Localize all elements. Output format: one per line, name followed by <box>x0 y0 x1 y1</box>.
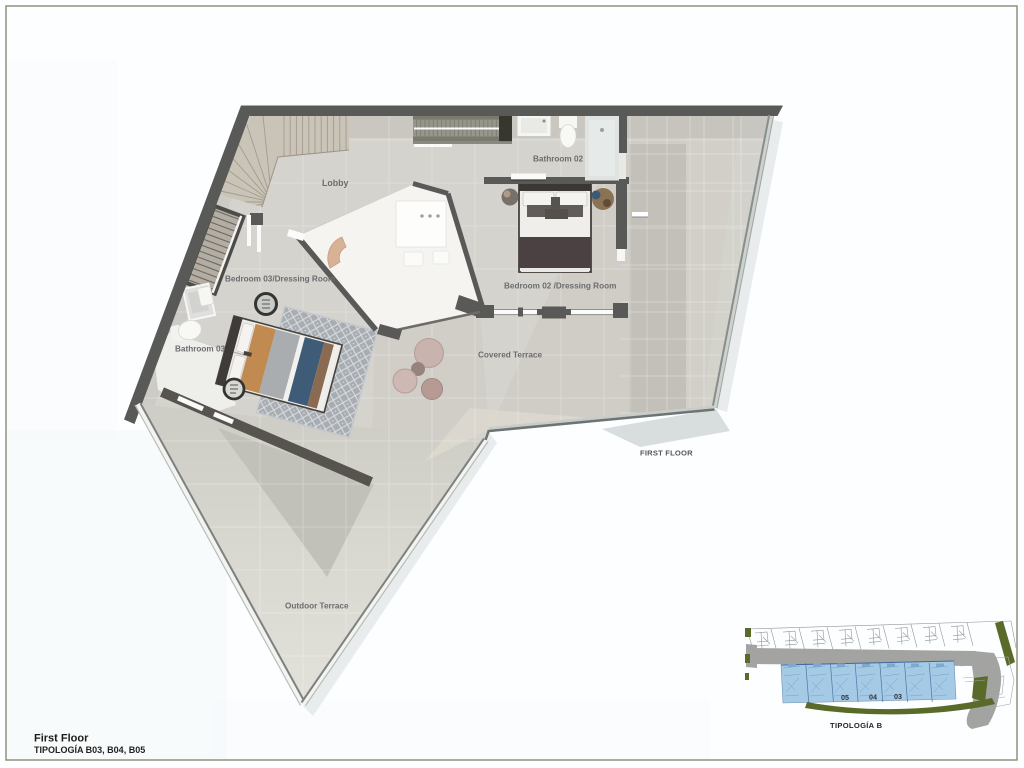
svg-text:Bedroom 03/Dressing Room: Bedroom 03/Dressing Room <box>225 275 335 284</box>
svg-text:TIPOLOGÍA B03, B04, B05: TIPOLOGÍA B03, B04, B05 <box>34 745 145 755</box>
svg-text:Lobby: Lobby <box>322 178 348 188</box>
svg-text:TIPOLOGÍA B: TIPOLOGÍA B <box>830 721 883 730</box>
svg-text:FIRST FLOOR: FIRST FLOOR <box>640 449 693 458</box>
svg-text:Bathroom 02: Bathroom 02 <box>533 155 583 164</box>
svg-text:Outdoor Terrace: Outdoor Terrace <box>285 602 349 611</box>
svg-text:03: 03 <box>894 692 902 701</box>
svg-text:First Floor: First Floor <box>34 733 89 745</box>
svg-text:Covered Terrace: Covered Terrace <box>478 351 542 360</box>
svg-text:04: 04 <box>869 693 877 702</box>
svg-text:05: 05 <box>841 693 849 702</box>
svg-text:Bedroom 02 /Dressing Room: Bedroom 02 /Dressing Room <box>504 282 616 291</box>
svg-text:Bathroom 03: Bathroom 03 <box>175 345 225 354</box>
